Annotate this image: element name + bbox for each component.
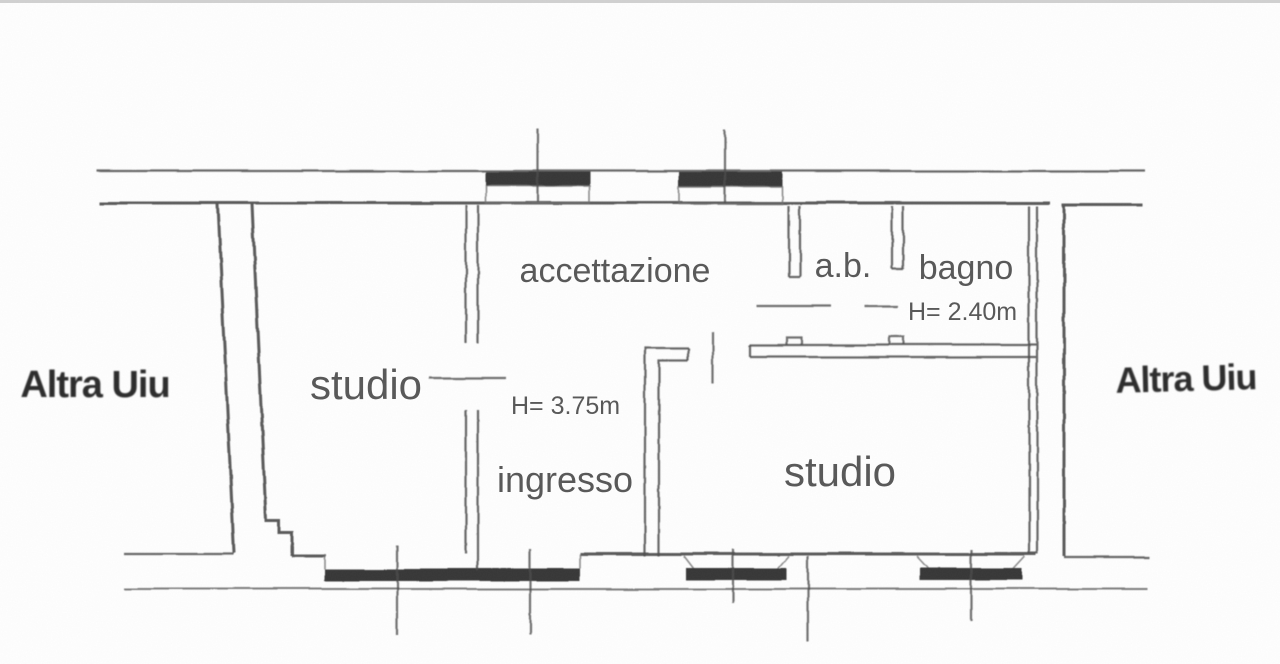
floor-plan-page: accettazione a.b. bagno H= 2.40m studio … [0,0,1280,664]
scan-grain-overlay [0,0,1280,664]
